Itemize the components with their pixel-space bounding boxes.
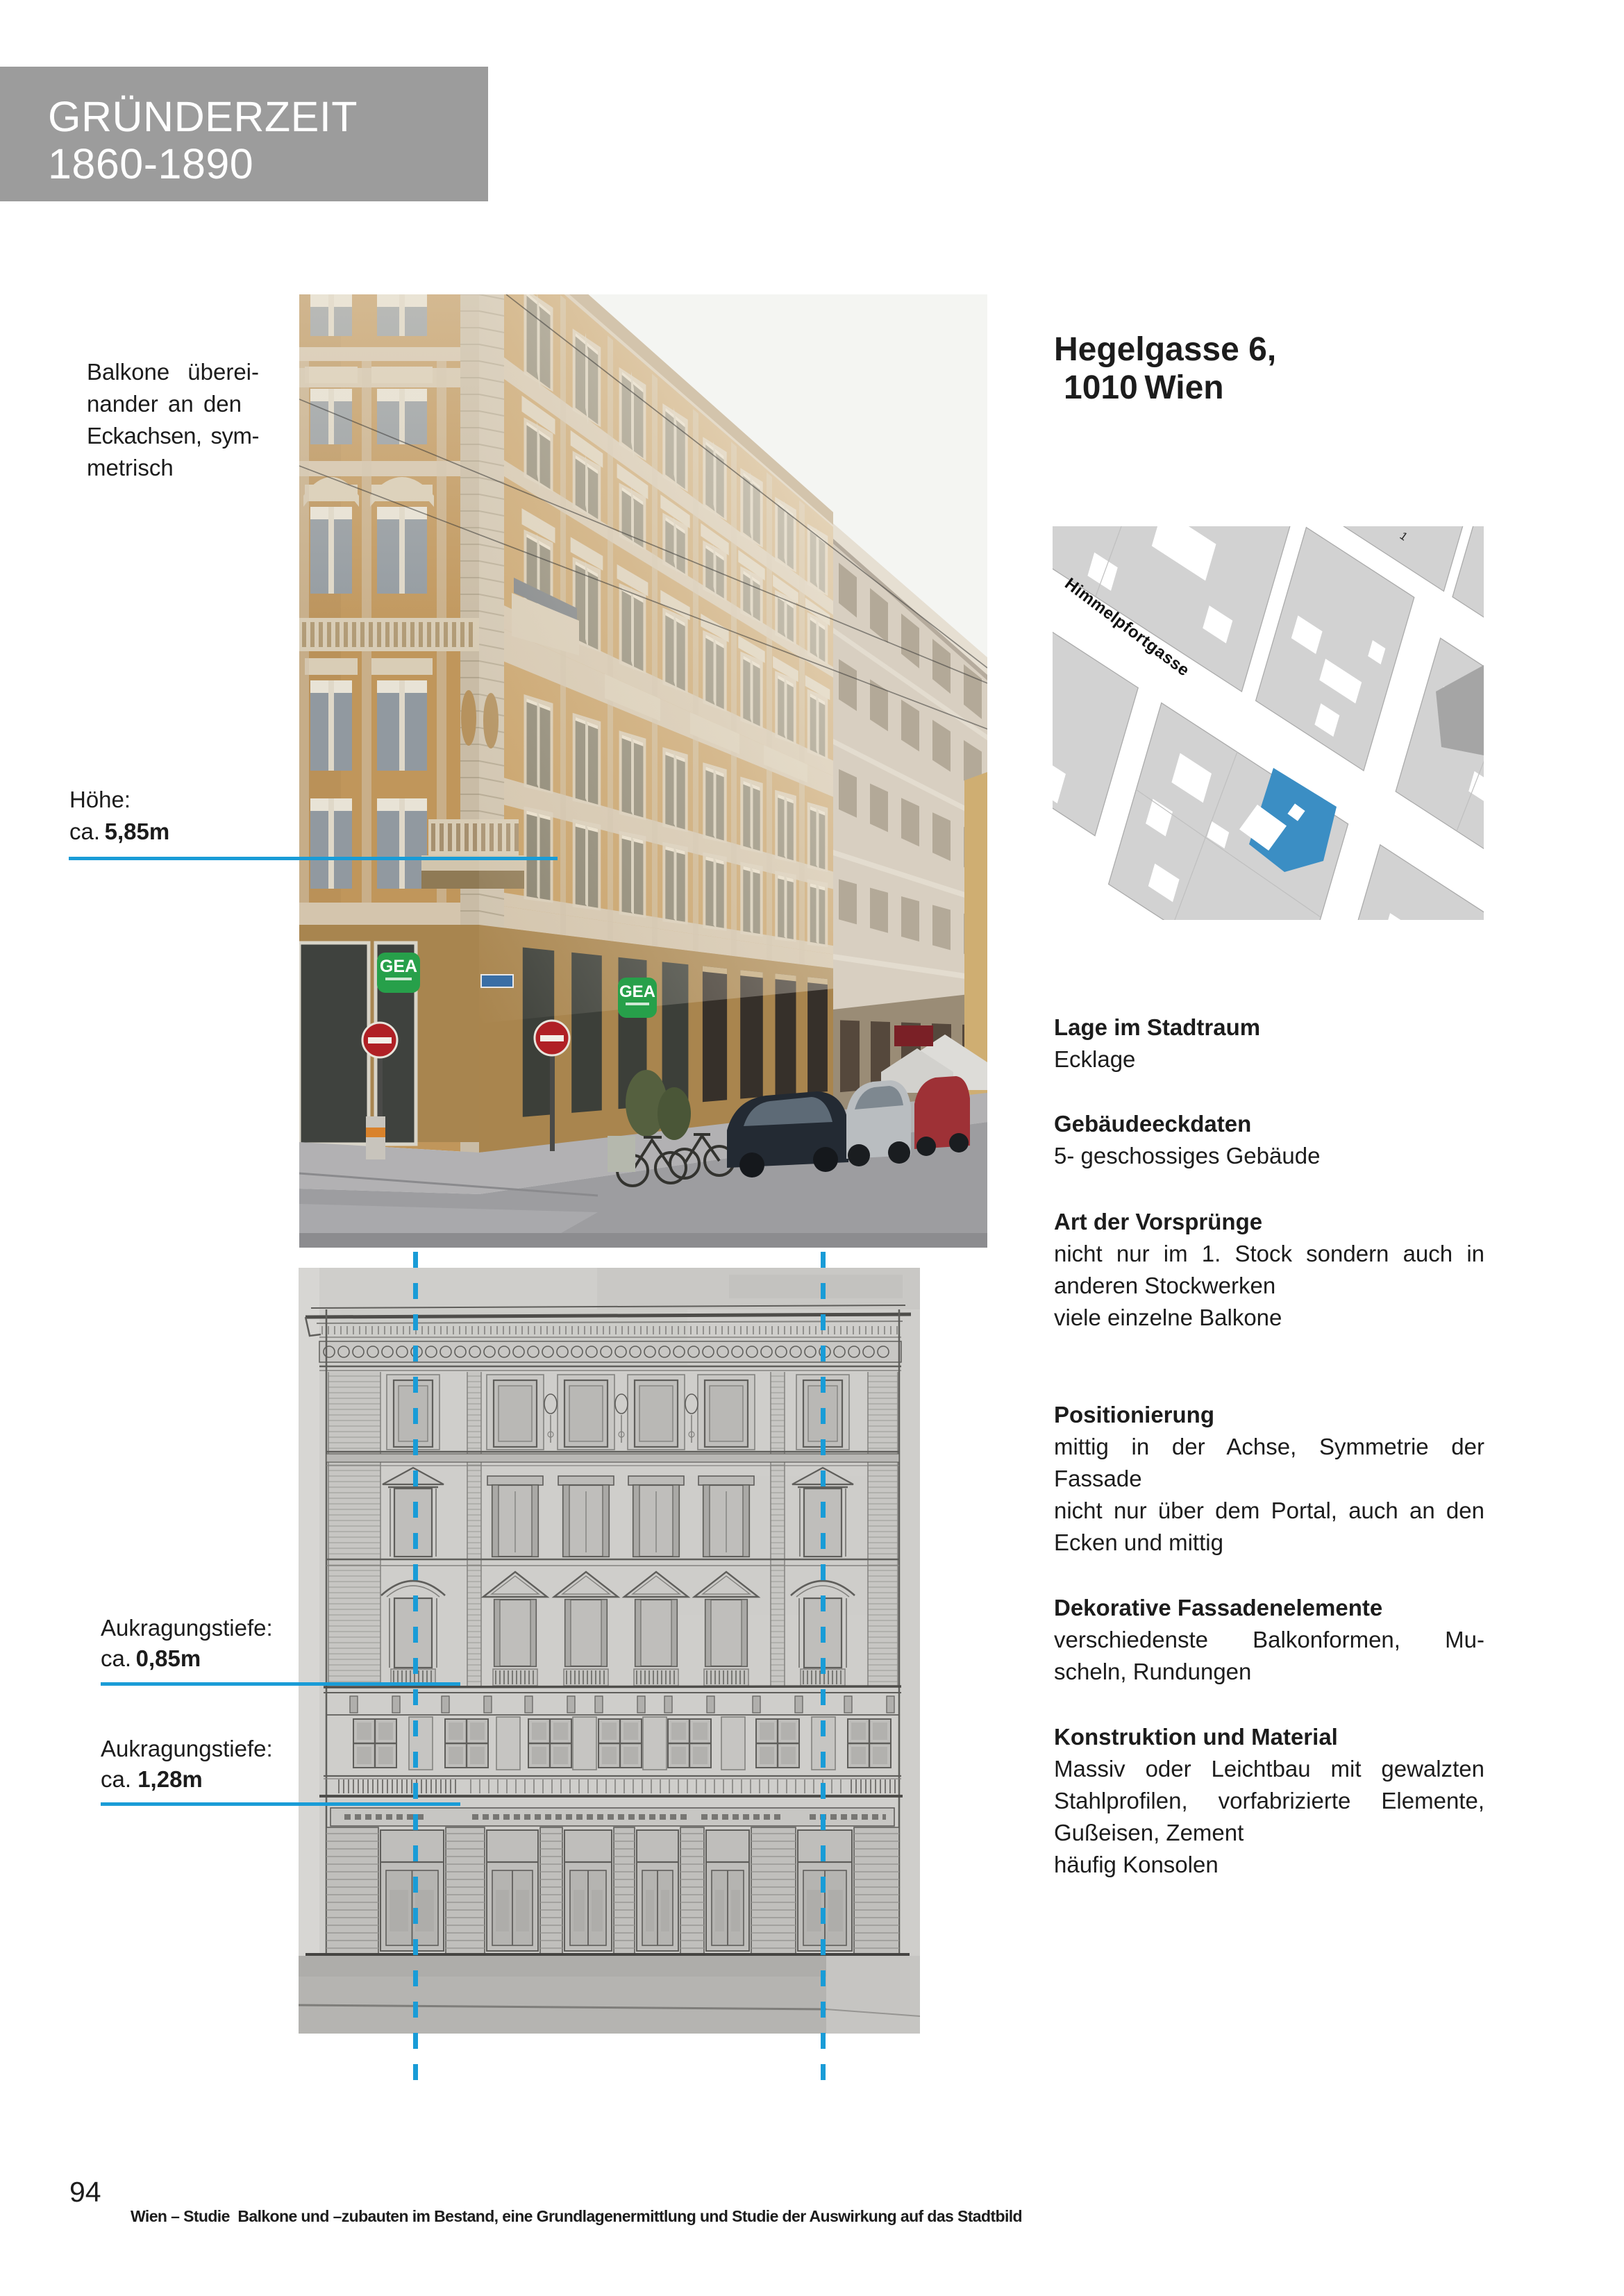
svg-text:GEA: GEA xyxy=(619,982,655,1001)
svg-text:GEA: GEA xyxy=(380,957,417,976)
